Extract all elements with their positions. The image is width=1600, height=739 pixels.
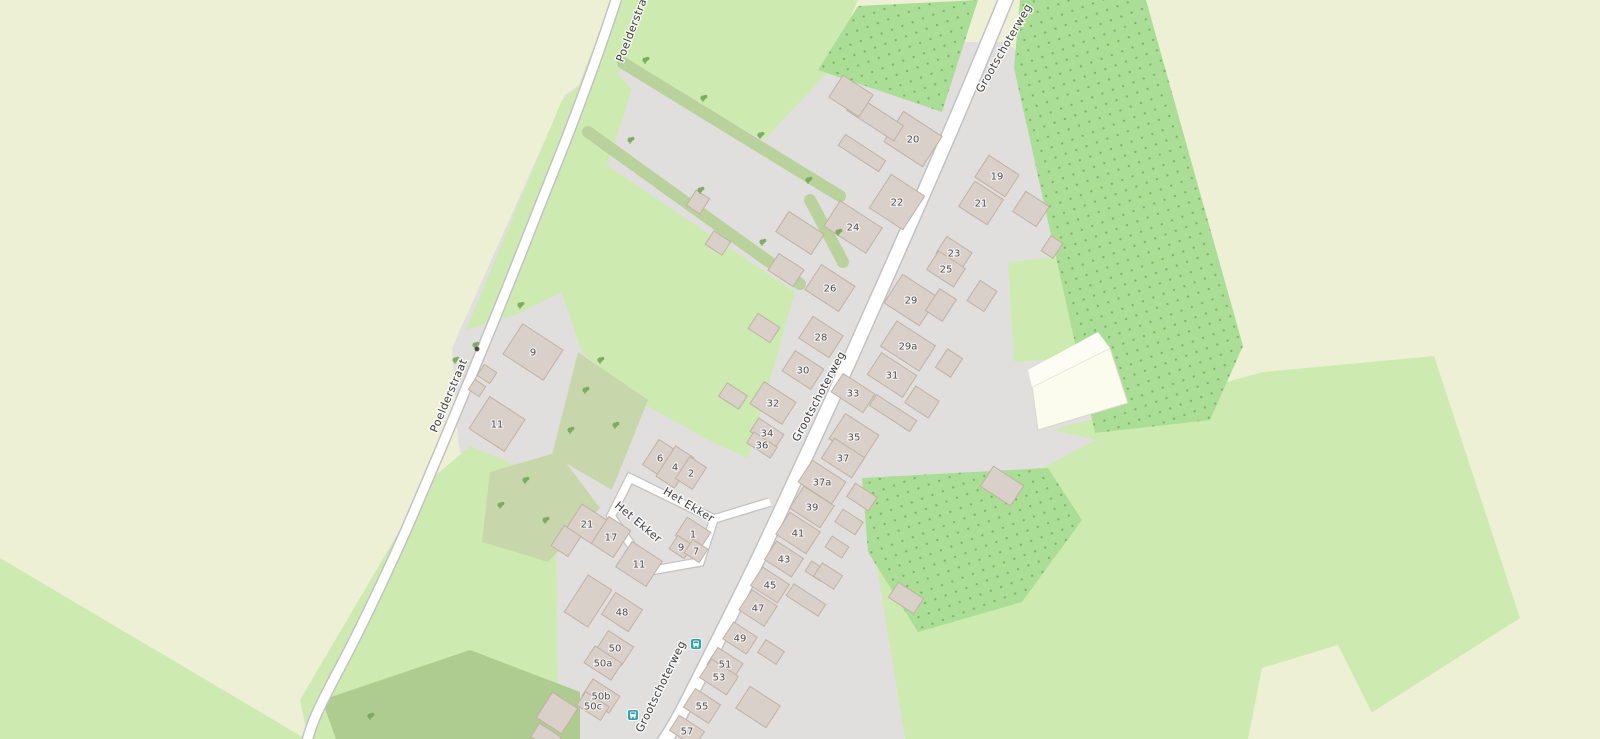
house-number-label: 29a — [899, 342, 918, 353]
house-number-label: 50 — [609, 644, 622, 655]
house-number-label: 49 — [734, 634, 747, 645]
house-number-label: 30 — [797, 366, 810, 377]
house-number-label: 57 — [681, 727, 694, 738]
house-number-label: 34 — [761, 429, 774, 440]
house-number-label: 55 — [696, 702, 709, 713]
house-number-label: 23 — [948, 249, 961, 260]
house-number-label: 50c — [584, 702, 602, 713]
house-number-label: 19 — [991, 172, 1004, 183]
house-number-label: 11 — [491, 420, 504, 431]
house-number-label: 7 — [693, 547, 699, 558]
house-number-label: 32 — [767, 399, 780, 410]
house-number-label: 11 — [633, 560, 646, 571]
house-number-label: 37 — [837, 454, 850, 465]
house-number-label: 24 — [847, 223, 860, 234]
bus-stop-icon[interactable] — [628, 710, 639, 721]
house-number-label: 9 — [678, 543, 684, 554]
house-number-label: 17 — [605, 533, 618, 544]
map-canvas[interactable]: 202224262830323436642911211719711485050a… — [0, 0, 1600, 739]
house-number-label: 1 — [690, 530, 696, 541]
house-number-label: 47 — [752, 604, 765, 615]
house-number-label: 20 — [907, 135, 920, 146]
house-number-label: 22 — [891, 198, 904, 209]
house-number-label: 39 — [806, 503, 819, 514]
gate-node — [475, 347, 480, 352]
house-number-label: 31 — [886, 371, 899, 382]
house-number-label: 43 — [778, 555, 791, 566]
house-number-label: 26 — [824, 284, 837, 295]
house-number-label: 4 — [672, 463, 678, 474]
house-number-label: 6 — [657, 454, 663, 465]
house-number-label: 37a — [813, 478, 832, 489]
house-number-label: 51 — [719, 660, 732, 671]
house-number-label: 2 — [688, 469, 694, 480]
house-number-label: 21 — [975, 199, 988, 210]
house-number-label: 33 — [847, 389, 860, 400]
house-number-label: 35 — [848, 433, 861, 444]
house-number-label: 28 — [815, 333, 828, 344]
house-number-label: 9 — [530, 348, 536, 359]
house-number-label: 50a — [594, 659, 613, 670]
house-number-label: 36 — [756, 441, 769, 452]
house-number-label: 45 — [764, 581, 777, 592]
house-number-label: 29 — [905, 296, 918, 307]
house-number-label: 25 — [940, 265, 953, 276]
house-number-label: 48 — [616, 608, 629, 619]
house-number-label: 41 — [792, 529, 805, 540]
road-marker-layer — [475, 347, 480, 352]
map-svg: 202224262830323436642911211719711485050a… — [0, 0, 1600, 739]
house-number-label: 53 — [713, 673, 726, 684]
house-number-label: 21 — [581, 520, 594, 531]
bus-stop-icon[interactable] — [691, 639, 702, 650]
